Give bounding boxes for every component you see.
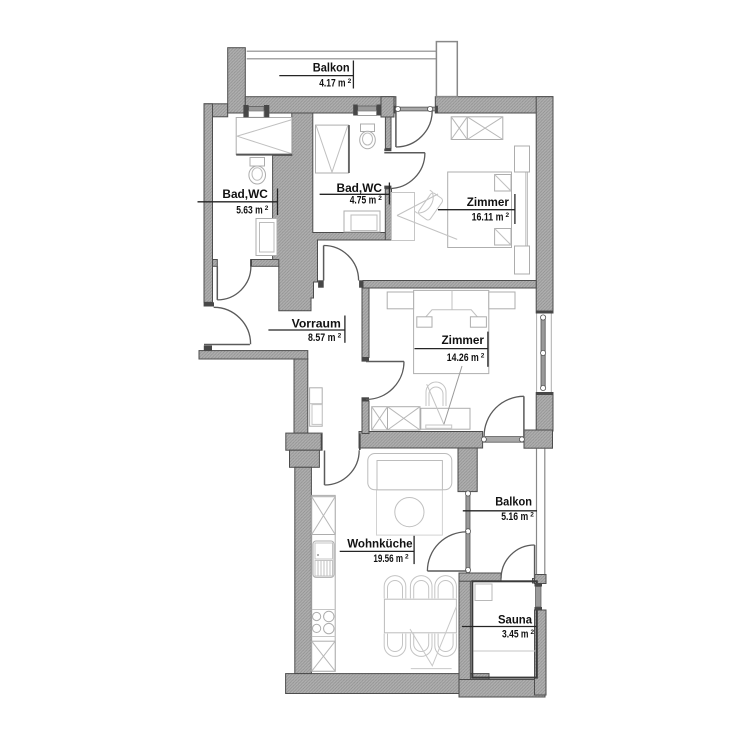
svg-text:Zimmer: Zimmer — [467, 196, 510, 209]
svg-text:2: 2 — [531, 629, 535, 636]
svg-text:2: 2 — [338, 332, 342, 339]
svg-text:16.11 m: 16.11 m — [472, 211, 504, 223]
svg-text:Bad,WC: Bad,WC — [222, 188, 268, 201]
svg-text:2: 2 — [530, 511, 534, 518]
svg-text:19.56 m: 19.56 m — [373, 553, 403, 565]
svg-text:2: 2 — [405, 553, 409, 560]
svg-text:2: 2 — [348, 78, 352, 85]
svg-text:5.63 m: 5.63 m — [236, 205, 263, 217]
svg-text:2: 2 — [265, 205, 269, 212]
svg-text:Balkon: Balkon — [313, 61, 350, 74]
svg-text:Bad,WC: Bad,WC — [337, 182, 383, 195]
svg-text:Balkon: Balkon — [495, 495, 532, 508]
svg-text:Wohnküche: Wohnküche — [347, 537, 413, 550]
svg-text:2: 2 — [378, 195, 382, 202]
svg-text:2: 2 — [506, 212, 510, 219]
svg-text:8.57 m: 8.57 m — [308, 332, 336, 344]
svg-text:4.75 m: 4.75 m — [350, 194, 377, 206]
svg-text:5.16 m: 5.16 m — [501, 511, 528, 523]
svg-text:2: 2 — [481, 352, 485, 359]
svg-text:Vorraum: Vorraum — [292, 317, 341, 330]
svg-text:Sauna: Sauna — [498, 614, 532, 627]
svg-text:4.17 m: 4.17 m — [319, 77, 345, 89]
svg-text:3.45 m: 3.45 m — [502, 629, 529, 641]
svg-text:14.26 m: 14.26 m — [447, 352, 479, 364]
svg-text:Zimmer: Zimmer — [442, 334, 485, 347]
